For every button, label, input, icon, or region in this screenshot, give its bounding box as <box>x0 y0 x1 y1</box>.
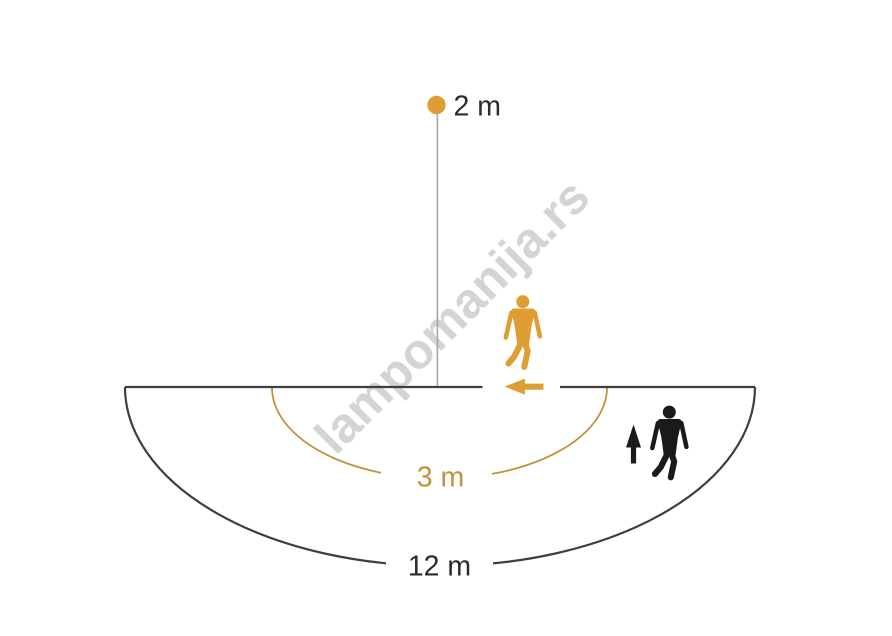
svg-text:12 m: 12 m <box>408 551 471 583</box>
svg-text:2 m: 2 m <box>454 91 502 123</box>
svg-text:3 m: 3 m <box>417 462 465 494</box>
